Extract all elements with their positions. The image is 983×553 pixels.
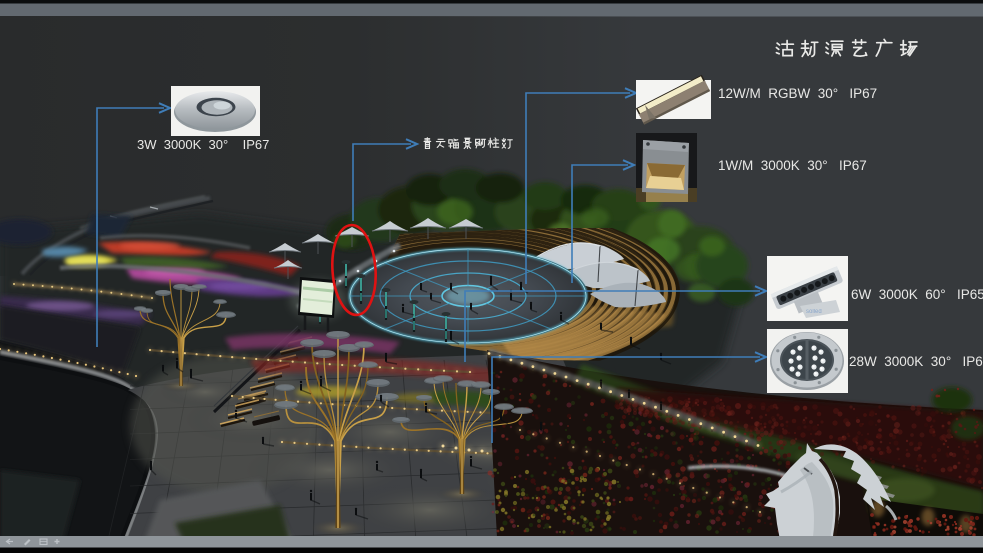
svg-text:12W/M RGBW 30° IP67: 12W/M RGBW 30° IP67 — [718, 86, 877, 101]
svg-text:28W 3000K 30° IP67: 28W 3000K 30° IP67 — [849, 354, 983, 369]
svg-text:solled: solled — [806, 309, 822, 315]
svg-text:1W/M 3000K 30° IP67: 1W/M 3000K 30° IP67 — [718, 158, 867, 173]
svg-text:3W 3000K 30° IP67: 3W 3000K 30° IP67 — [137, 137, 269, 152]
svg-text:6W 3000K 60° IP65: 6W 3000K 60° IP65 — [851, 287, 983, 302]
